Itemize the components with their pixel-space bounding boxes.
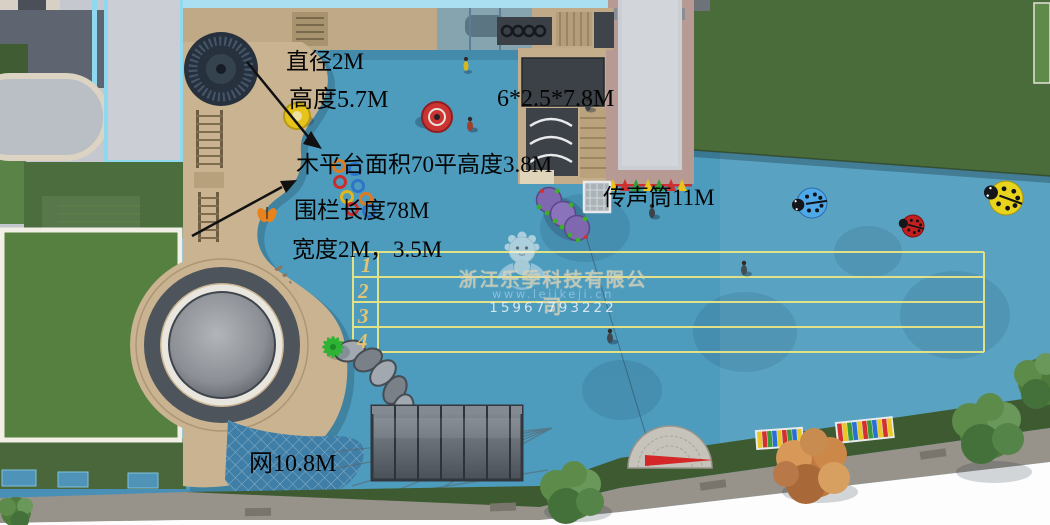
tree-green-corner: [0, 497, 33, 525]
lane-number-2: 2: [358, 281, 369, 302]
height-label: 高度5.7M: [289, 88, 388, 113]
lane-number-4: 4: [357, 331, 368, 352]
platform-label: 木平台面积70平高度3.8M: [296, 153, 552, 177]
building-top-left: [0, 0, 184, 238]
watermark-phone: 15967793222: [458, 300, 648, 316]
spiral-tower: [184, 32, 258, 106]
voice-tube-label: 传声筒11M: [603, 186, 715, 210]
fence-label: 围栏长度78M: [294, 199, 429, 223]
net-label: 网10.8M: [249, 452, 336, 477]
dome-structure: [130, 253, 314, 437]
building-wing: [606, 0, 694, 184]
lawn-top-right: [694, 0, 1050, 183]
structure-size-label: 6*2.5*7.8M: [497, 87, 614, 112]
lane-number-3: 3: [358, 306, 369, 327]
diameter-label: 直径2M: [286, 50, 364, 74]
watermark-website: www.lejikeji.cn: [458, 287, 648, 301]
lane-number-1: 1: [361, 255, 372, 276]
site-plan-rendering: [0, 0, 1050, 525]
playground-site-plan: 直径2M 高度5.7M 6*2.5*7.8M 木平台面积70平高度3.8M 围栏…: [0, 0, 1050, 525]
glass-house: [372, 406, 522, 480]
